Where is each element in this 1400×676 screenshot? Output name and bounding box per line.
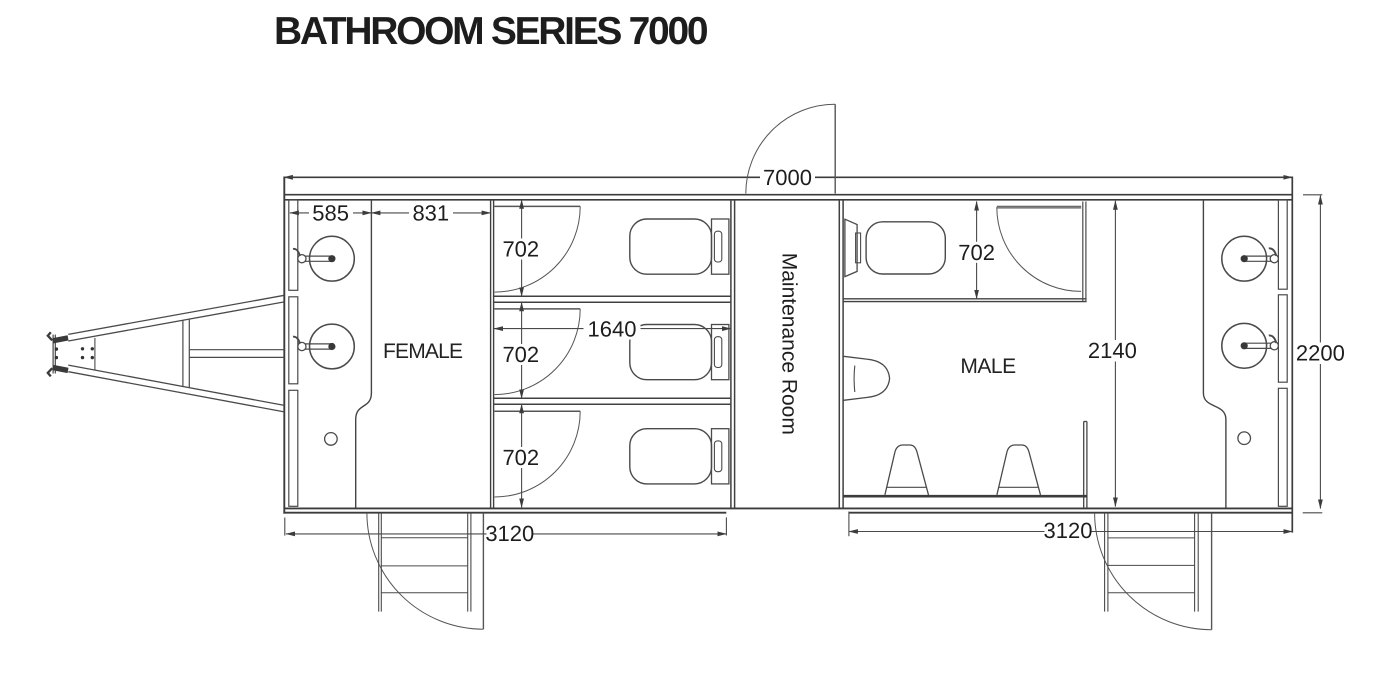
svg-text:Maintenance Room: Maintenance Room (778, 253, 801, 435)
svg-text:702: 702 (502, 237, 539, 262)
svg-text:3120: 3120 (485, 521, 534, 546)
svg-text:MALE: MALE (960, 355, 1016, 378)
svg-text:FEMALE: FEMALE (383, 340, 463, 363)
svg-text:2140: 2140 (1088, 338, 1137, 363)
svg-text:702: 702 (958, 240, 995, 265)
svg-text:702: 702 (502, 445, 539, 470)
svg-text:831: 831 (412, 201, 449, 226)
svg-text:585: 585 (312, 201, 349, 226)
svg-text:702: 702 (502, 342, 539, 367)
svg-text:3120: 3120 (1044, 518, 1093, 543)
svg-text:7000: 7000 (763, 165, 812, 190)
svg-text:1640: 1640 (588, 317, 637, 342)
svg-text:BATHROOM SERIES 7000: BATHROOM SERIES 7000 (274, 10, 708, 53)
svg-text:2200: 2200 (1296, 341, 1345, 366)
